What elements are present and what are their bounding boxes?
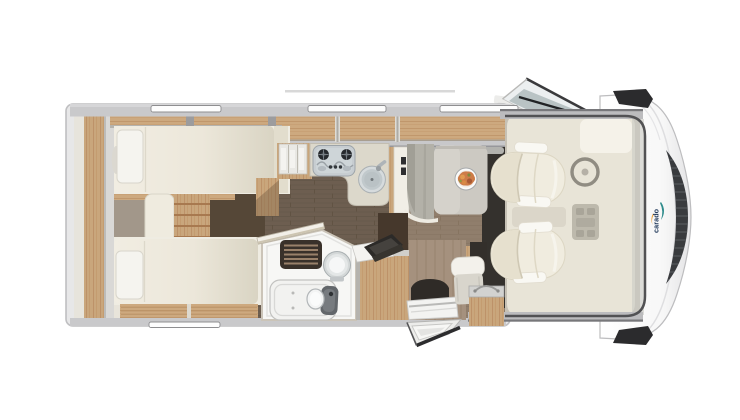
svg-text:carado: carado xyxy=(652,208,661,233)
